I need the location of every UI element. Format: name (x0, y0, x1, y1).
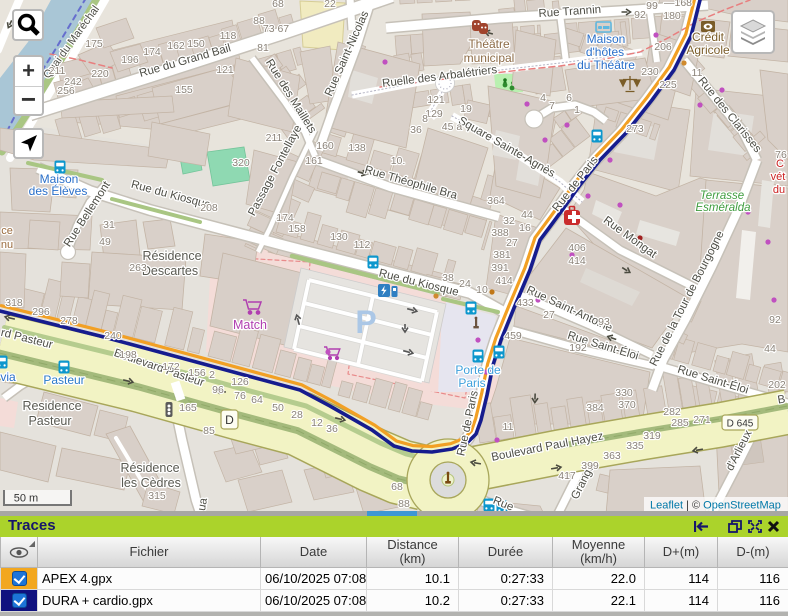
svg-text:330: 330 (615, 387, 633, 399)
svg-text:211: 211 (49, 65, 66, 77)
svg-text:315: 315 (148, 490, 166, 502)
svg-text:Maison: Maison (587, 32, 626, 46)
svg-text:196: 196 (121, 54, 139, 66)
svg-text:36: 36 (410, 124, 422, 136)
svg-text:—168: —168 (664, 0, 692, 9)
svg-text:161: 161 (305, 155, 323, 167)
svg-text:93: 93 (598, 316, 610, 328)
svg-text:208: 208 (200, 202, 218, 214)
svg-text:381: 381 (493, 249, 511, 261)
svg-text:Descartes: Descartes (142, 264, 198, 278)
svg-text:172: 172 (162, 361, 180, 373)
svg-text:49: 49 (99, 236, 111, 248)
svg-text:50 m: 50 m (14, 493, 38, 505)
svg-text:384: 384 (586, 402, 604, 414)
svg-text:180: 180 (663, 10, 681, 22)
svg-text:85: 85 (203, 425, 215, 437)
svg-text:335: 335 (626, 440, 644, 452)
svg-text:Théâtre: Théâtre (468, 37, 510, 51)
svg-text:31: 31 (103, 219, 115, 231)
svg-text:211: 211 (266, 132, 283, 144)
svg-text:165: 165 (179, 402, 197, 414)
svg-text:285: 285 (671, 417, 689, 429)
svg-text:364: 364 (487, 195, 505, 207)
svg-text:121: 121 (216, 64, 234, 76)
svg-text:370: 370 (618, 399, 636, 411)
svg-text:271: 271 (693, 414, 711, 426)
svg-text:36: 36 (326, 423, 338, 435)
svg-text:175: 175 (85, 38, 103, 50)
svg-text:92: 92 (769, 314, 781, 326)
svg-text:Crédit: Crédit (692, 30, 725, 44)
svg-text:Esméralda: Esméralda (696, 202, 751, 214)
svg-text:220: 220 (91, 68, 109, 80)
svg-text:Residence: Residence (22, 399, 81, 413)
svg-text:99: 99 (646, 0, 658, 12)
svg-text:P: P (355, 304, 376, 340)
svg-text:19: 19 (460, 103, 472, 115)
svg-text:81: 81 (257, 42, 269, 54)
svg-text:50: 50 (272, 402, 284, 414)
svg-text:192: 192 (569, 342, 587, 354)
svg-text:16: 16 (519, 222, 531, 234)
svg-text:Résidence: Résidence (120, 461, 179, 475)
svg-text:2: 2 (209, 369, 215, 381)
svg-text:76: 76 (234, 390, 246, 402)
svg-text:45 a: 45 a (442, 121, 463, 133)
svg-text:nu: nu (1, 239, 13, 251)
svg-text:363: 363 (603, 450, 621, 462)
svg-text:160: 160 (316, 140, 334, 152)
svg-text:174: 174 (143, 46, 161, 58)
svg-text:319: 319 (643, 430, 661, 442)
svg-text:206: 206 (654, 41, 672, 53)
svg-text:121: 121 (427, 94, 445, 106)
svg-text:459: 459 (504, 330, 522, 342)
svg-text:des Élèves: des Élèves (29, 183, 88, 198)
svg-text:27: 27 (543, 309, 555, 321)
svg-text:76: 76 (775, 149, 787, 161)
svg-text:24: 24 (459, 278, 471, 290)
svg-text:22: 22 (324, 0, 336, 10)
svg-text:225: 225 (659, 79, 677, 91)
svg-text:Agricole: Agricole (686, 43, 730, 57)
svg-text:155: 155 (175, 84, 193, 96)
svg-text:8: 8 (422, 113, 428, 125)
svg-text:32: 32 (503, 215, 515, 227)
svg-text:12: 12 (311, 417, 323, 429)
svg-text:Résidence: Résidence (142, 249, 201, 263)
svg-text:320: 320 (232, 157, 250, 169)
svg-text:414: 414 (495, 275, 513, 287)
svg-text:318: 318 (5, 297, 23, 309)
svg-text:92: 92 (634, 9, 646, 21)
svg-text:du: du (773, 184, 785, 196)
svg-text:6: 6 (566, 92, 572, 104)
svg-text:ce: ce (1, 225, 13, 237)
svg-text:10: 10 (476, 284, 488, 296)
svg-text:Pasteur: Pasteur (28, 414, 71, 428)
svg-text:38: 38 (442, 272, 454, 284)
svg-text:150: 150 (187, 38, 205, 50)
svg-text:399: 399 (581, 460, 599, 472)
svg-text:296: 296 (32, 306, 50, 318)
svg-text:118: 118 (220, 30, 237, 42)
svg-text:198: 198 (119, 349, 137, 361)
svg-text:27: 27 (506, 237, 518, 249)
svg-text:414: 414 (568, 255, 586, 267)
svg-text:138: 138 (348, 142, 366, 154)
svg-text:158: 158 (288, 223, 306, 235)
svg-text:Pasteur: Pasteur (43, 373, 84, 387)
svg-text:Match: Match (233, 318, 267, 332)
svg-text:44: 44 (764, 343, 776, 355)
svg-text:1: 1 (574, 104, 580, 116)
svg-text:126: 126 (231, 376, 249, 388)
svg-text:263: 263 (129, 262, 147, 274)
svg-text:10.: 10. (391, 155, 406, 167)
svg-text:273: 273 (626, 123, 644, 135)
svg-text:Paris: Paris (458, 376, 485, 390)
svg-text:240: 240 (104, 330, 122, 342)
svg-text:162: 162 (167, 40, 185, 52)
svg-text:417: 417 (558, 470, 576, 482)
svg-text:278: 278 (60, 315, 78, 327)
svg-text:112: 112 (354, 239, 371, 251)
svg-text:4: 4 (540, 92, 546, 104)
svg-text:D 645: D 645 (727, 419, 754, 430)
svg-text:Leaflet | © OpenStreetMap: Leaflet | © OpenStreetMap (650, 500, 781, 512)
svg-text:7: 7 (549, 100, 555, 112)
svg-text:Terrasse: Terrasse (700, 190, 744, 202)
svg-text:230: 230 (641, 66, 659, 78)
svg-text:156: 156 (188, 367, 206, 379)
svg-text:256: 256 (57, 85, 75, 97)
svg-text:Porte de: Porte de (455, 363, 501, 377)
svg-text:391: 391 (491, 262, 509, 274)
svg-text:via: via (0, 370, 16, 384)
svg-text:433: 433 (516, 297, 534, 309)
svg-text:du Théâtre: du Théâtre (577, 58, 635, 72)
svg-text:68: 68 (391, 481, 403, 493)
svg-text:96: 96 (212, 384, 224, 396)
svg-text:11: 11 (503, 421, 514, 433)
svg-text:68: 68 (272, 0, 284, 10)
svg-text:406: 406 (568, 242, 586, 254)
svg-text:municipal: municipal (464, 51, 515, 65)
svg-text:d'hôtes: d'hôtes (586, 45, 624, 59)
svg-text:D: D (225, 413, 234, 427)
svg-text:vét: vét (771, 171, 786, 183)
svg-text:11: 11 (692, 67, 703, 79)
svg-text:28: 28 (291, 409, 303, 421)
svg-text:88: 88 (398, 498, 410, 510)
svg-text:64: 64 (251, 394, 263, 406)
svg-text:73 67: 73 67 (263, 23, 289, 35)
svg-text:les Cèdres: les Cèdres (121, 476, 181, 490)
svg-text:130: 130 (330, 231, 348, 243)
svg-text:202: 202 (768, 379, 786, 391)
svg-text:44: 44 (521, 209, 533, 221)
